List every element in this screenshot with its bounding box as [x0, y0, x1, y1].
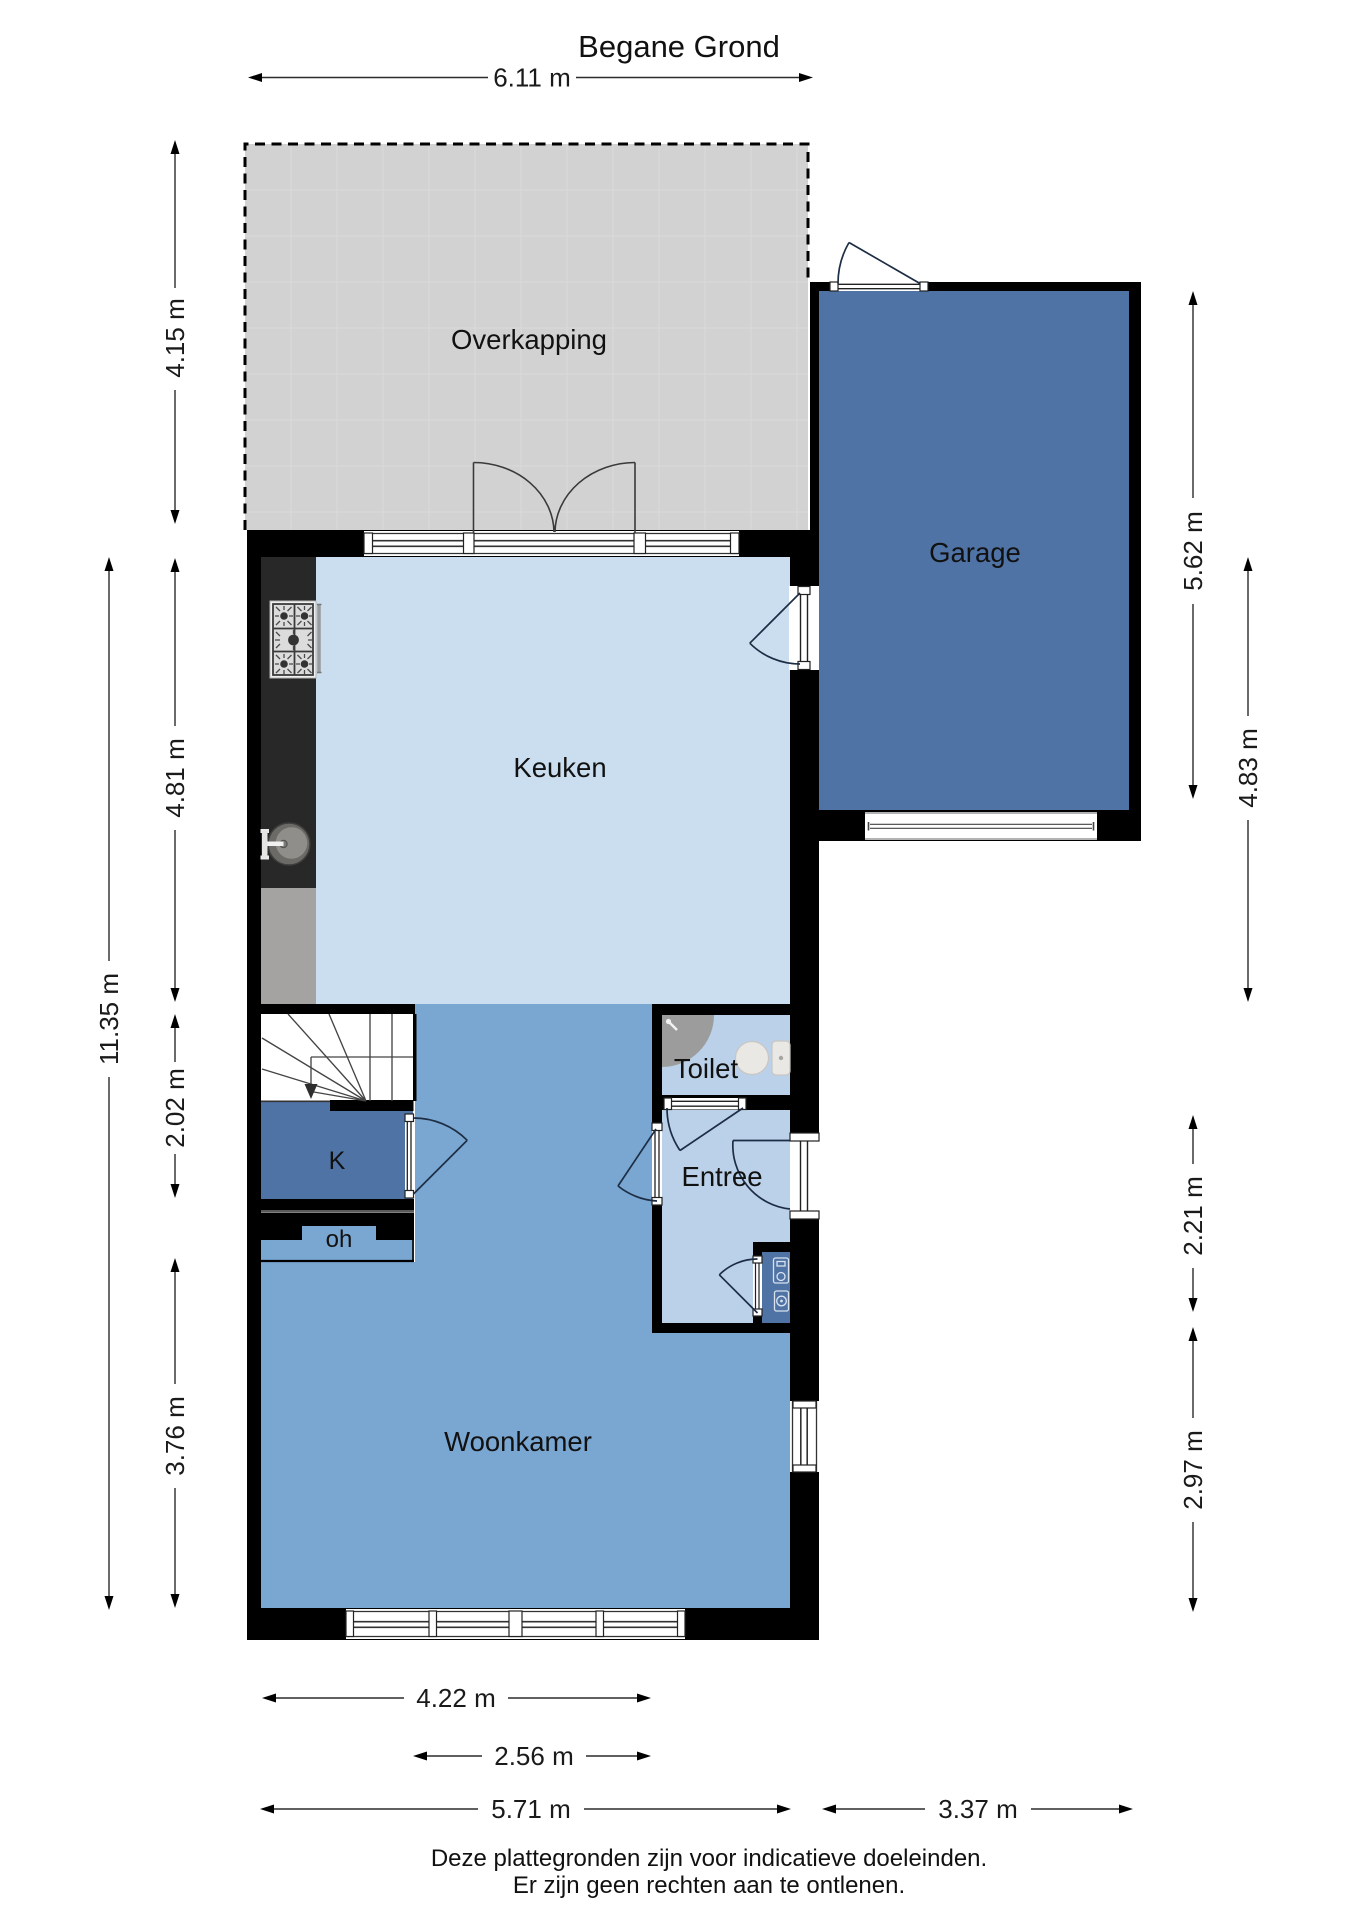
svg-text:4.15 m: 4.15 m [160, 298, 190, 378]
svg-text:5.71 m: 5.71 m [491, 1794, 571, 1824]
svg-text:3.76 m: 3.76 m [160, 1396, 190, 1476]
svg-text:Keuken: Keuken [513, 752, 606, 783]
svg-text:Er zijn geen rechten aan te on: Er zijn geen rechten aan te ontlenen. [513, 1872, 905, 1899]
svg-text:oh: oh [326, 1226, 353, 1253]
svg-text:4.83 m: 4.83 m [1233, 728, 1263, 808]
svg-text:Entree: Entree [681, 1161, 762, 1192]
svg-text:5.62 m: 5.62 m [1178, 511, 1208, 591]
svg-text:Begane Grond: Begane Grond [578, 29, 780, 64]
svg-text:2.56 m: 2.56 m [494, 1741, 574, 1771]
svg-text:4.81 m: 4.81 m [160, 738, 190, 818]
svg-text:Toilet: Toilet [674, 1053, 739, 1084]
svg-text:Overkapping: Overkapping [451, 324, 607, 355]
svg-text:2.97 m: 2.97 m [1178, 1430, 1208, 1510]
svg-text:2.21 m: 2.21 m [1178, 1176, 1208, 1256]
svg-text:Deze plattegronden zijn voor i: Deze plattegronden zijn voor indicatieve… [431, 1845, 987, 1872]
svg-text:Garage: Garage [929, 537, 1021, 568]
svg-text:6.11 m: 6.11 m [493, 63, 571, 93]
svg-text:11.35 m: 11.35 m [94, 973, 124, 1065]
svg-text:4.22 m: 4.22 m [416, 1683, 496, 1713]
svg-text:Woonkamer: Woonkamer [444, 1426, 592, 1457]
svg-text:K: K [329, 1147, 346, 1175]
svg-text:3.37 m: 3.37 m [938, 1794, 1018, 1824]
svg-text:2.02 m: 2.02 m [160, 1068, 190, 1148]
